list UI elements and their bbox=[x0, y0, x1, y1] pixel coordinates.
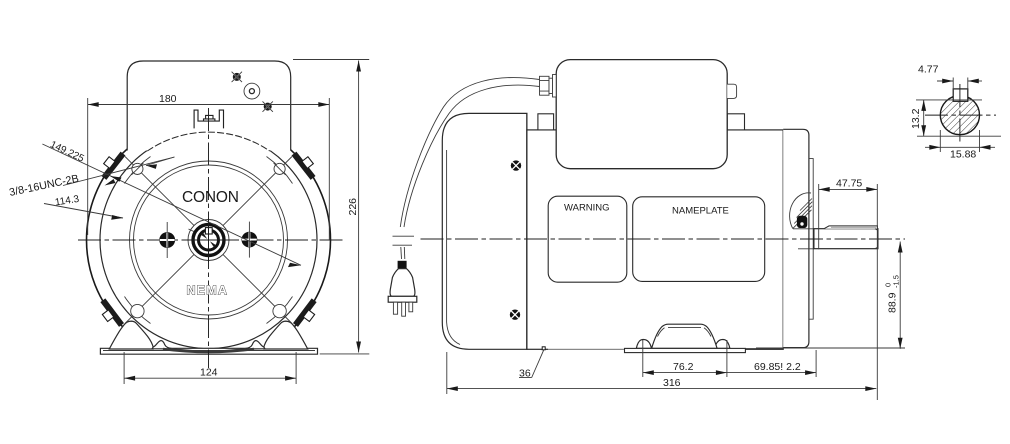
svg-text:124: 124 bbox=[200, 367, 218, 379]
svg-text:88.9: 88.9 bbox=[887, 292, 899, 313]
svg-text:15.88: 15.88 bbox=[950, 149, 976, 161]
svg-text:76.2: 76.2 bbox=[673, 361, 694, 373]
svg-text:NAMEPLATE: NAMEPLATE bbox=[672, 206, 729, 217]
svg-text:316: 316 bbox=[663, 377, 681, 389]
svg-text:WARNING: WARNING bbox=[564, 203, 610, 214]
svg-text:47.75: 47.75 bbox=[836, 178, 862, 190]
svg-text:226: 226 bbox=[347, 198, 359, 216]
svg-text:-1.5: -1.5 bbox=[892, 275, 901, 288]
svg-text:36: 36 bbox=[519, 368, 531, 380]
svg-text:CONON: CONON bbox=[182, 189, 239, 206]
svg-text:13.2: 13.2 bbox=[910, 108, 922, 129]
svg-text:180: 180 bbox=[159, 93, 177, 105]
svg-text:69.85! 2.2: 69.85! 2.2 bbox=[754, 361, 801, 373]
svg-text:NEMA: NEMA bbox=[187, 284, 229, 298]
svg-text:4.77: 4.77 bbox=[918, 64, 939, 76]
